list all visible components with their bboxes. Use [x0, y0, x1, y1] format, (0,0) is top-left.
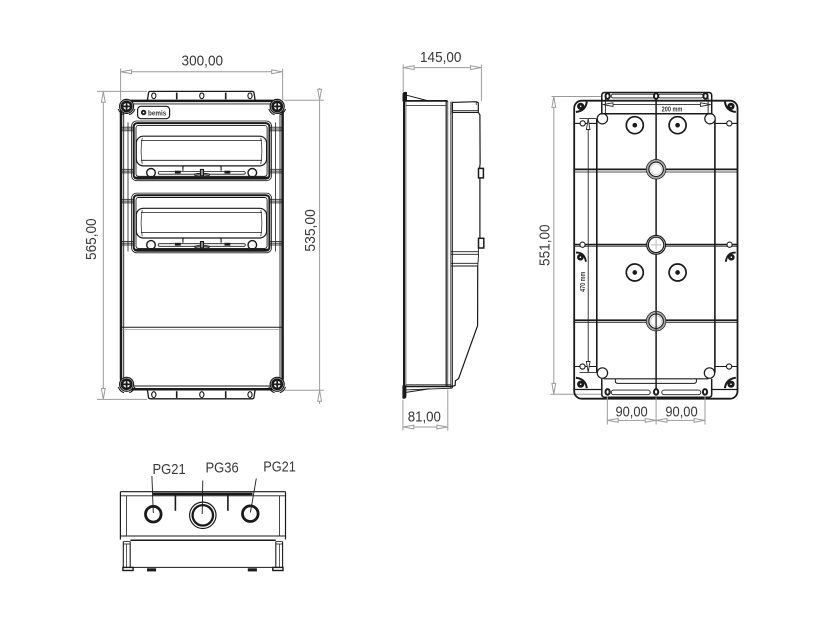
svg-text:90,00: 90,00 — [665, 403, 697, 420]
svg-text:300,00: 300,00 — [182, 52, 224, 69]
svg-text:565,00: 565,00 — [83, 218, 100, 260]
svg-text:PG21: PG21 — [153, 461, 186, 478]
svg-text:bemis: bemis — [148, 108, 166, 117]
svg-text:200 mm: 200 mm — [662, 106, 683, 113]
svg-text:535,00: 535,00 — [302, 209, 319, 251]
svg-text:81,00: 81,00 — [408, 408, 441, 425]
svg-text:145,00: 145,00 — [420, 49, 461, 66]
svg-text:PG36: PG36 — [206, 459, 239, 476]
svg-text:90,00: 90,00 — [615, 403, 647, 420]
svg-text:551,00: 551,00 — [537, 224, 554, 266]
svg-text:470 mm: 470 mm — [580, 272, 587, 292]
svg-text:PG21: PG21 — [263, 459, 296, 476]
